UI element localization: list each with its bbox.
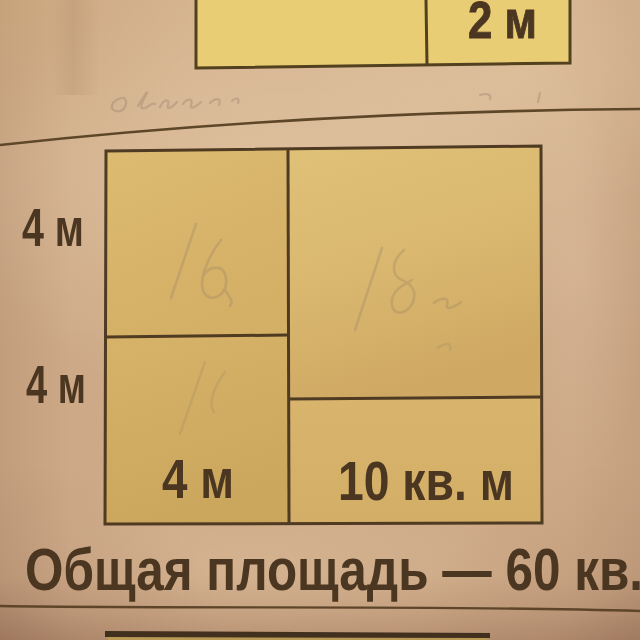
svg-text:10 кв. м: 10 кв. м — [338, 450, 514, 512]
svg-text:4 м: 4 м — [22, 197, 84, 257]
svg-text:4 м: 4 м — [26, 354, 86, 414]
svg-text:4 м: 4 м — [162, 447, 234, 510]
svg-text:Общая площадь — 60 кв.: Общая площадь — 60 кв. — [25, 536, 640, 603]
svg-text:2 м: 2 м — [468, 0, 537, 49]
